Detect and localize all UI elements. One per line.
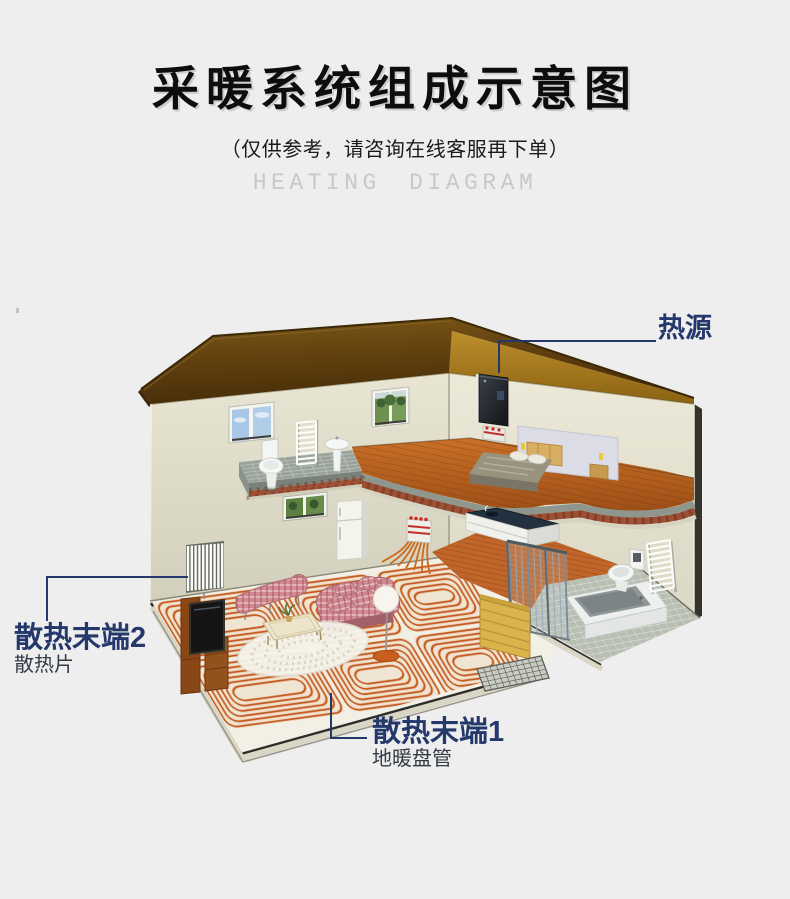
- wall-sconce: [599, 453, 603, 460]
- window-trees-upper: [372, 387, 409, 427]
- window-sky: [229, 402, 274, 443]
- lamp-shade: [374, 586, 399, 612]
- callout-terminal-2: 散热末端2 散热片: [14, 622, 146, 677]
- terminal2-label: 散热末端2: [14, 622, 146, 654]
- terminal2-sublabel: 散热片: [14, 654, 146, 676]
- left-wall-cut-edge: [150, 404, 151, 601]
- terminal1-label: 散热末端1: [372, 716, 504, 748]
- fridge: [337, 500, 368, 560]
- print-speck: [16, 308, 19, 313]
- terminal1-sublabel: 地暖盘管: [372, 748, 504, 770]
- right-wall-cut-edge: [694, 404, 702, 619]
- tv-cabinet: [181, 597, 228, 694]
- heat-source-label: 热源: [658, 313, 712, 343]
- wall-sconce: [521, 443, 525, 450]
- callout-heat-source: 热源: [658, 313, 712, 343]
- callout-terminal-1: 散热末端1 地暖盘管: [372, 716, 504, 771]
- window-trees-lower: [283, 492, 327, 521]
- product-diagram-page: 采暖系统组成示意图 （仅供参考，请咨询在线客服再下单） HEATING DIAG…: [0, 0, 790, 899]
- nightstand: [590, 464, 608, 479]
- kitchen-sink: [486, 512, 498, 517]
